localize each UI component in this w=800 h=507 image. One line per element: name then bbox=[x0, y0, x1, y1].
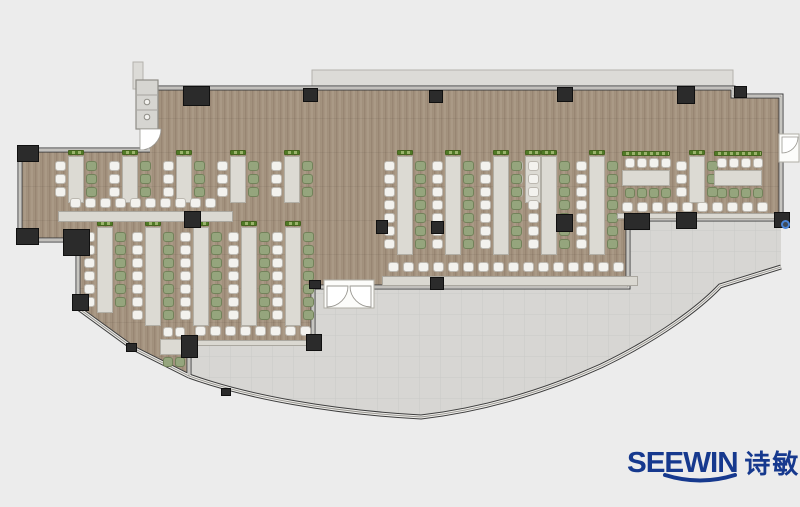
chair bbox=[163, 187, 174, 197]
structural-column bbox=[376, 220, 388, 234]
chair bbox=[84, 258, 95, 268]
chair bbox=[132, 232, 143, 242]
chair bbox=[140, 187, 151, 197]
chair bbox=[86, 174, 97, 184]
desk-table bbox=[284, 156, 300, 203]
chair bbox=[259, 310, 270, 320]
plant-strip bbox=[525, 150, 541, 155]
bar-chair bbox=[682, 202, 693, 212]
chair bbox=[753, 188, 763, 198]
chair bbox=[528, 174, 539, 184]
chair bbox=[180, 284, 191, 294]
bar-chair bbox=[727, 202, 738, 212]
chair bbox=[259, 258, 270, 268]
chair bbox=[180, 245, 191, 255]
chair bbox=[132, 284, 143, 294]
chair bbox=[463, 213, 474, 223]
chair bbox=[432, 187, 443, 197]
bar-chair bbox=[553, 262, 564, 272]
chair bbox=[463, 200, 474, 210]
window-bench bbox=[188, 340, 314, 346]
chair bbox=[384, 174, 395, 184]
chair bbox=[132, 310, 143, 320]
chair bbox=[109, 161, 120, 171]
chair bbox=[272, 284, 283, 294]
chair bbox=[132, 258, 143, 268]
chair bbox=[86, 161, 97, 171]
desk-table bbox=[714, 170, 762, 186]
window-bench bbox=[58, 211, 233, 222]
chair bbox=[228, 310, 239, 320]
desk-table bbox=[241, 227, 257, 326]
chair bbox=[576, 239, 587, 249]
plant-strip bbox=[493, 150, 509, 155]
chair bbox=[415, 161, 426, 171]
chair bbox=[559, 200, 570, 210]
chair bbox=[528, 226, 539, 236]
desk-table bbox=[689, 156, 705, 203]
bar-chair bbox=[652, 202, 663, 212]
chair bbox=[576, 161, 587, 171]
chair bbox=[511, 226, 522, 236]
bar-chair bbox=[85, 198, 96, 208]
plant-strip bbox=[622, 151, 670, 156]
chair bbox=[637, 188, 647, 198]
structural-column bbox=[677, 86, 695, 104]
seewin-logo: SEEWIN 诗敏 bbox=[627, 448, 800, 490]
structural-column bbox=[430, 277, 444, 290]
chair bbox=[463, 226, 474, 236]
chair bbox=[607, 226, 618, 236]
chair bbox=[163, 310, 174, 320]
bar-chair bbox=[433, 262, 444, 272]
chair bbox=[607, 161, 618, 171]
chair bbox=[272, 258, 283, 268]
chair bbox=[115, 245, 126, 255]
chair bbox=[180, 258, 191, 268]
chair bbox=[511, 239, 522, 249]
chair bbox=[717, 188, 727, 198]
bar-chair bbox=[403, 262, 414, 272]
structural-column bbox=[184, 211, 201, 228]
desk-table bbox=[397, 156, 413, 255]
desk-table bbox=[68, 156, 84, 203]
chair bbox=[271, 187, 282, 197]
bar-chair bbox=[712, 202, 723, 212]
chair bbox=[576, 213, 587, 223]
chair bbox=[480, 213, 491, 223]
chair bbox=[741, 188, 751, 198]
chair bbox=[511, 161, 522, 171]
structural-column bbox=[624, 213, 650, 230]
chair bbox=[55, 161, 66, 171]
plant-strip bbox=[241, 221, 257, 226]
bar-chair bbox=[613, 262, 624, 272]
desk-table bbox=[445, 156, 461, 255]
plant-strip bbox=[285, 221, 301, 226]
plant-strip bbox=[284, 150, 300, 155]
chair bbox=[432, 174, 443, 184]
structural-column bbox=[16, 228, 39, 245]
chair bbox=[228, 284, 239, 294]
chair bbox=[303, 245, 314, 255]
chair bbox=[55, 187, 66, 197]
bar-chair bbox=[160, 198, 171, 208]
chair bbox=[676, 187, 687, 197]
bar-chair bbox=[255, 326, 266, 336]
survey-marker bbox=[781, 220, 790, 229]
desk-table bbox=[145, 227, 161, 326]
chair bbox=[228, 245, 239, 255]
chair bbox=[415, 200, 426, 210]
chair bbox=[55, 174, 66, 184]
structural-column bbox=[72, 294, 89, 311]
chair bbox=[528, 213, 539, 223]
chair bbox=[576, 174, 587, 184]
chair bbox=[115, 284, 126, 294]
bar-chair bbox=[667, 202, 678, 212]
desk-table bbox=[193, 227, 209, 326]
chair bbox=[163, 271, 174, 281]
bar-chair bbox=[388, 262, 399, 272]
bar-chair bbox=[508, 262, 519, 272]
chair bbox=[625, 158, 635, 168]
chair bbox=[109, 174, 120, 184]
plant-strip bbox=[122, 150, 138, 155]
desk-table bbox=[230, 156, 246, 203]
desk-table bbox=[285, 227, 301, 326]
chair bbox=[463, 239, 474, 249]
chair bbox=[272, 232, 283, 242]
chair bbox=[163, 327, 173, 337]
chair bbox=[140, 174, 151, 184]
bar-chair bbox=[210, 326, 221, 336]
bar-chair bbox=[270, 326, 281, 336]
bar-chair bbox=[478, 262, 489, 272]
structural-column bbox=[429, 90, 443, 103]
desk-table bbox=[176, 156, 192, 203]
chair bbox=[480, 200, 491, 210]
chair bbox=[180, 271, 191, 281]
chair bbox=[741, 158, 751, 168]
structural-column bbox=[303, 88, 318, 102]
chair bbox=[649, 188, 659, 198]
chair bbox=[217, 174, 228, 184]
chair bbox=[132, 297, 143, 307]
chair bbox=[303, 310, 314, 320]
chair bbox=[303, 232, 314, 242]
bar-chair bbox=[190, 198, 201, 208]
bar-chair bbox=[175, 198, 186, 208]
chair bbox=[661, 188, 671, 198]
chair bbox=[432, 200, 443, 210]
chair bbox=[607, 239, 618, 249]
desk-table bbox=[122, 156, 138, 203]
structural-column bbox=[431, 221, 444, 234]
chair bbox=[259, 271, 270, 281]
bar-chair bbox=[568, 262, 579, 272]
chair bbox=[211, 232, 222, 242]
plant-strip bbox=[589, 150, 605, 155]
logo-chinese-text: 诗敏 bbox=[744, 448, 800, 480]
structural-column bbox=[306, 334, 322, 351]
plant-strip bbox=[176, 150, 192, 155]
chair bbox=[259, 297, 270, 307]
chair bbox=[217, 187, 228, 197]
bar-chair bbox=[523, 262, 534, 272]
chair bbox=[163, 258, 174, 268]
chair bbox=[432, 239, 443, 249]
structural-column bbox=[126, 343, 137, 352]
chair bbox=[175, 357, 185, 367]
chair bbox=[228, 232, 239, 242]
chair bbox=[248, 187, 259, 197]
chair bbox=[528, 200, 539, 210]
structural-column bbox=[557, 87, 573, 102]
chair bbox=[463, 187, 474, 197]
chair bbox=[607, 174, 618, 184]
chair bbox=[211, 284, 222, 294]
chair bbox=[163, 161, 174, 171]
bar-chair bbox=[463, 262, 474, 272]
chair bbox=[228, 258, 239, 268]
chair bbox=[717, 158, 727, 168]
chair bbox=[607, 187, 618, 197]
chair bbox=[163, 245, 174, 255]
chair bbox=[415, 187, 426, 197]
chair bbox=[480, 187, 491, 197]
structural-column bbox=[181, 335, 198, 358]
chair bbox=[637, 158, 647, 168]
chair bbox=[676, 161, 687, 171]
bar-chair bbox=[493, 262, 504, 272]
chair bbox=[115, 297, 126, 307]
chair bbox=[528, 187, 539, 197]
chair bbox=[180, 297, 191, 307]
chair bbox=[415, 239, 426, 249]
chair bbox=[109, 187, 120, 197]
chair bbox=[211, 310, 222, 320]
bar-chair bbox=[145, 198, 156, 208]
chair bbox=[559, 239, 570, 249]
chair bbox=[194, 174, 205, 184]
plant-strip bbox=[397, 150, 413, 155]
chair bbox=[576, 200, 587, 210]
bar-chair bbox=[100, 198, 111, 208]
bar-chair bbox=[115, 198, 126, 208]
chair bbox=[272, 310, 283, 320]
chair bbox=[132, 271, 143, 281]
plant-strip bbox=[445, 150, 461, 155]
chair bbox=[729, 158, 739, 168]
chair bbox=[228, 271, 239, 281]
chair bbox=[271, 174, 282, 184]
chair bbox=[228, 297, 239, 307]
structural-column bbox=[63, 229, 90, 256]
chair bbox=[607, 200, 618, 210]
chair bbox=[194, 161, 205, 171]
chair bbox=[528, 239, 539, 249]
chair bbox=[463, 161, 474, 171]
desk-table bbox=[589, 156, 605, 255]
chair bbox=[384, 187, 395, 197]
chair bbox=[559, 187, 570, 197]
chair bbox=[86, 187, 97, 197]
chair bbox=[272, 297, 283, 307]
bar-chair bbox=[598, 262, 609, 272]
structural-column bbox=[309, 280, 321, 289]
chair bbox=[415, 226, 426, 236]
chair bbox=[649, 158, 659, 168]
bar-chair bbox=[583, 262, 594, 272]
chair bbox=[384, 239, 395, 249]
chair bbox=[303, 297, 314, 307]
chair bbox=[84, 284, 95, 294]
plant-strip bbox=[689, 150, 705, 155]
chair bbox=[163, 284, 174, 294]
chair bbox=[559, 174, 570, 184]
bar-chair bbox=[697, 202, 708, 212]
bar-chair bbox=[538, 262, 549, 272]
chair bbox=[211, 297, 222, 307]
chair bbox=[259, 284, 270, 294]
chair bbox=[248, 174, 259, 184]
structural-column bbox=[556, 214, 573, 232]
chair bbox=[217, 161, 228, 171]
chair bbox=[194, 187, 205, 197]
chair bbox=[163, 174, 174, 184]
chair bbox=[559, 161, 570, 171]
bar-chair bbox=[285, 326, 296, 336]
chair bbox=[84, 271, 95, 281]
structural-column bbox=[676, 212, 697, 229]
desk-table bbox=[493, 156, 509, 255]
plant-strip bbox=[68, 150, 84, 155]
bar-chair bbox=[448, 262, 459, 272]
bar-chair bbox=[757, 202, 768, 212]
chair bbox=[163, 297, 174, 307]
chair bbox=[384, 161, 395, 171]
chair bbox=[248, 161, 259, 171]
chair bbox=[303, 258, 314, 268]
chair bbox=[163, 232, 174, 242]
chair bbox=[211, 245, 222, 255]
chair bbox=[576, 187, 587, 197]
chair bbox=[132, 245, 143, 255]
bar-chair bbox=[70, 198, 81, 208]
bar-chair bbox=[130, 198, 141, 208]
chair bbox=[271, 161, 282, 171]
chair bbox=[511, 174, 522, 184]
plant-strip bbox=[230, 150, 246, 155]
chair bbox=[115, 271, 126, 281]
chair bbox=[432, 161, 443, 171]
chair bbox=[463, 174, 474, 184]
chair bbox=[511, 200, 522, 210]
chair bbox=[259, 245, 270, 255]
chair bbox=[676, 174, 687, 184]
bar-chair bbox=[622, 202, 633, 212]
chair bbox=[511, 213, 522, 223]
desk-table bbox=[622, 170, 670, 186]
chair bbox=[480, 161, 491, 171]
chair bbox=[511, 187, 522, 197]
chair bbox=[272, 245, 283, 255]
chair bbox=[163, 357, 173, 367]
chair bbox=[272, 271, 283, 281]
chair bbox=[180, 310, 191, 320]
bar-chair bbox=[240, 326, 251, 336]
chair bbox=[115, 258, 126, 268]
chair bbox=[302, 174, 313, 184]
plant-strip bbox=[714, 151, 762, 156]
bar-chair bbox=[742, 202, 753, 212]
desk-table bbox=[541, 156, 557, 255]
chair bbox=[528, 161, 539, 171]
chair bbox=[661, 158, 671, 168]
chair bbox=[415, 213, 426, 223]
logo-swoosh bbox=[662, 473, 738, 485]
bar-chair bbox=[225, 326, 236, 336]
chair bbox=[625, 188, 635, 198]
chair bbox=[211, 271, 222, 281]
chair bbox=[753, 158, 763, 168]
chair bbox=[384, 200, 395, 210]
desk-table bbox=[97, 227, 113, 313]
structural-column bbox=[183, 86, 210, 106]
chair bbox=[415, 174, 426, 184]
chair bbox=[115, 232, 126, 242]
chair bbox=[302, 187, 313, 197]
furniture-layer bbox=[0, 0, 800, 507]
chair bbox=[480, 226, 491, 236]
chair bbox=[480, 174, 491, 184]
structural-column bbox=[17, 145, 39, 162]
chair bbox=[480, 239, 491, 249]
plant-strip bbox=[541, 150, 557, 155]
bar-chair bbox=[418, 262, 429, 272]
window-bench bbox=[382, 276, 638, 286]
chair bbox=[259, 232, 270, 242]
bar-chair bbox=[637, 202, 648, 212]
bar-chair bbox=[205, 198, 216, 208]
chair bbox=[211, 258, 222, 268]
chair bbox=[302, 161, 313, 171]
chair bbox=[729, 188, 739, 198]
chair bbox=[576, 226, 587, 236]
chair bbox=[140, 161, 151, 171]
structural-column bbox=[734, 86, 747, 98]
structural-column bbox=[221, 388, 231, 396]
chair bbox=[180, 232, 191, 242]
floor-plan: SEEWIN 诗敏 bbox=[0, 0, 800, 507]
